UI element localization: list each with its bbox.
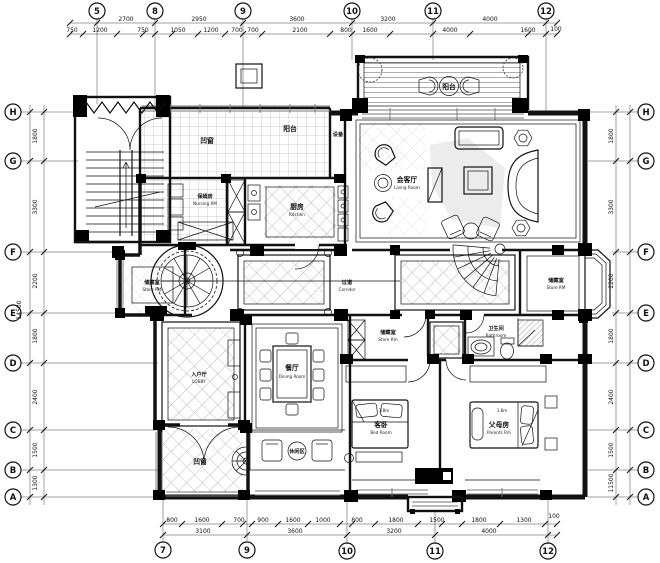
dim: 2700: [118, 16, 133, 23]
grid-bubble: G: [5, 153, 21, 169]
grid-bubble: A: [5, 489, 21, 505]
grid-bubble: 5: [89, 3, 105, 19]
grid-bubble-label: 8: [152, 7, 158, 17]
dim: 4000: [481, 528, 496, 535]
grid-bubble-label: E: [643, 309, 649, 319]
grid-bubble: 8: [147, 3, 163, 19]
grid-bubble-label: E: [10, 309, 16, 319]
grid-bubble-label: G: [643, 157, 650, 167]
dim: 2100: [292, 27, 307, 34]
grid-bubble-label: D: [9, 359, 16, 369]
dim: 1500: [429, 517, 444, 524]
label-bay-top: 凹窗: [200, 136, 214, 145]
dim: 700: [247, 27, 259, 34]
label-living-en: Living Room: [394, 185, 420, 190]
grid-bubble: 9: [235, 3, 251, 19]
label-guest-en: Bed Room: [370, 430, 391, 435]
grid-bubble: D: [638, 355, 654, 371]
label-balcony-main: 阳台: [442, 82, 456, 91]
grid-bubble: 12: [540, 543, 556, 559]
label-balcony-small: 阳台: [283, 124, 297, 133]
grid-bubble: G: [638, 153, 654, 169]
dim: 1800: [388, 517, 403, 524]
dim: 750: [137, 27, 149, 34]
dim: 700: [231, 27, 243, 34]
grid-bubble-label: B: [643, 466, 649, 476]
dim: 1800: [608, 328, 615, 343]
dim: 1050: [170, 27, 185, 34]
dim: 1800: [471, 517, 486, 524]
grid-bubble-label: F: [643, 248, 649, 258]
dim: 1600: [362, 27, 377, 34]
round-table: [463, 223, 479, 239]
label-bath-zh: 卫生间: [488, 324, 504, 332]
label-store-right-zh: 储藏室: [548, 276, 564, 284]
dim: 800: [351, 517, 363, 524]
grid-bubble-label: B: [10, 466, 16, 476]
label-dining-zh: 餐厅: [284, 363, 299, 372]
grid-bubble-label: 7: [160, 546, 166, 556]
dim: 750: [66, 27, 78, 34]
dim: 700: [233, 517, 245, 524]
grid-bubble-label: 10: [346, 7, 358, 17]
foyer-medallion: [151, 245, 400, 317]
dim: 1600: [194, 517, 209, 524]
grid-bubble-label: A: [643, 493, 650, 503]
wardrobes: [346, 366, 546, 382]
label-corridor-zh: 过道: [342, 278, 353, 286]
label-store-mid-en: Store Rm: [378, 337, 397, 342]
dim: 2200: [32, 273, 39, 288]
grid-bubble-label: G: [10, 157, 17, 167]
dim: 800: [166, 517, 178, 524]
grid-bubble: B: [5, 462, 21, 478]
dim: 900: [257, 517, 269, 524]
label-store-left-en: Store RM: [143, 287, 162, 292]
dim: 11500: [608, 473, 615, 492]
dim: 1300: [32, 475, 39, 490]
label-nanny-en: Nursing RM: [193, 201, 217, 206]
label-guest-bedsize: 1.8m: [379, 408, 389, 413]
grid-bubble: H: [638, 104, 654, 120]
grid-bubble: 11: [425, 3, 441, 19]
round-table: [375, 175, 392, 192]
grid-bubble: A: [638, 489, 654, 505]
dim: 3200: [386, 528, 401, 535]
label-leisure: 休闲区: [288, 447, 305, 455]
dim: 1800: [32, 328, 39, 343]
dim: 1200: [92, 27, 107, 34]
label-kitchen-en: Kitchen: [289, 212, 305, 217]
label-store-left-zh: 储藏室: [144, 278, 160, 286]
dim: 1300: [516, 517, 531, 524]
dim: 100: [550, 26, 562, 33]
dim: 4000: [442, 27, 457, 34]
dim: 3200: [380, 16, 395, 23]
grid-bubble: D: [5, 355, 21, 371]
grid-bubble: 7: [155, 542, 171, 558]
grid-bubble: H: [5, 104, 21, 120]
label-living-zh: 会客厅: [397, 175, 418, 184]
side-table: [514, 130, 532, 146]
grid-bubble: 12: [538, 3, 554, 19]
label-kitchen-zh: 厨房: [290, 202, 304, 211]
dim: 4000: [482, 16, 497, 23]
dim: 1200: [203, 27, 218, 34]
grid-bubble-label: 12: [540, 7, 552, 17]
grid-bubble-label: 10: [341, 547, 353, 557]
curved-sofa: [508, 150, 538, 222]
grid-bubble-label: A: [10, 493, 17, 503]
label-lobby-zh: 入户厅: [190, 370, 207, 378]
dim: 3300: [608, 199, 615, 214]
grid-bubble-label: H: [642, 108, 649, 118]
grid-bubble-label: D: [642, 359, 649, 369]
label-bay-bottom: 凹窗: [193, 457, 207, 466]
label-parents-zh: 父母房: [488, 420, 510, 429]
label-corridor-en: Corridor: [339, 287, 356, 292]
label-dining-en: Dining Room: [279, 374, 306, 379]
grid-bubble: 9: [239, 542, 255, 558]
dim: 1800: [608, 128, 615, 143]
grid-bubble: C: [5, 422, 21, 438]
grid-bubble-label: 9: [240, 7, 246, 17]
sink-icon: [471, 340, 491, 354]
label-guest-zh: 客卧: [373, 420, 388, 429]
dim: 100: [548, 513, 560, 520]
parents-bed: [470, 396, 557, 450]
floor-plan-page: 2700 2950 3600 3200 4000 750 1200 750 10…: [0, 0, 660, 563]
grid-bubble-label: 11: [427, 7, 439, 17]
grid-bubble-label: C: [10, 426, 16, 436]
grid-bubble: 10: [339, 543, 355, 559]
label-equipment: 设备: [333, 130, 344, 138]
grid-bubble: C: [638, 422, 654, 438]
grid-bubble: F: [638, 244, 654, 260]
label-nanny-zh: 保姆房: [196, 192, 213, 200]
dim: 800: [340, 27, 352, 34]
grid-bubble-label: F: [10, 248, 16, 258]
dim: 2400: [32, 389, 39, 404]
label-lobby-en: LOBBY: [192, 379, 206, 384]
toilet-icon: [501, 343, 514, 359]
label-store-mid-zh: 储藏室: [380, 328, 396, 336]
dim: 3600: [287, 528, 302, 535]
label-parents-en: Parents Rm: [487, 430, 511, 435]
grid-bubble: F: [5, 244, 21, 260]
floor-plan-drawing: 2700 2950 3600 3200 4000 750 1200 750 10…: [0, 0, 660, 563]
dim: 1600: [520, 27, 535, 34]
dim: 2950: [191, 16, 206, 23]
grid-bubble-label: 12: [542, 547, 554, 557]
grid-bubble: B: [638, 462, 654, 478]
dim: 3600: [289, 16, 304, 23]
dim: 1000: [315, 517, 330, 524]
dim: 3300: [32, 199, 39, 214]
label-bath-en: Bathroom: [486, 333, 507, 338]
grid-bubble-label: 5: [94, 7, 100, 17]
dim: 1500: [32, 442, 39, 457]
roof-box: [236, 64, 262, 88]
label-store-right-en: Store RM: [547, 285, 566, 290]
dim: 1600: [285, 517, 300, 524]
grid-bubble: E: [638, 305, 654, 321]
dim: 2200: [608, 273, 615, 288]
side-table: [512, 220, 530, 236]
dim: 1500: [608, 442, 615, 457]
label-parents-bedsize: 1.8m: [497, 408, 507, 413]
dim: 3100: [195, 528, 210, 535]
grid-bubble-label: H: [9, 108, 16, 118]
grid-bubble-label: 9: [244, 546, 250, 556]
grid-bubble-label: 11: [429, 547, 441, 557]
grid-bubble: 11: [427, 543, 443, 559]
dim: 1800: [32, 128, 39, 143]
grid-bubble-label: C: [643, 426, 649, 436]
grid-bubble: 10: [344, 3, 360, 19]
dim: 2400: [608, 389, 615, 404]
